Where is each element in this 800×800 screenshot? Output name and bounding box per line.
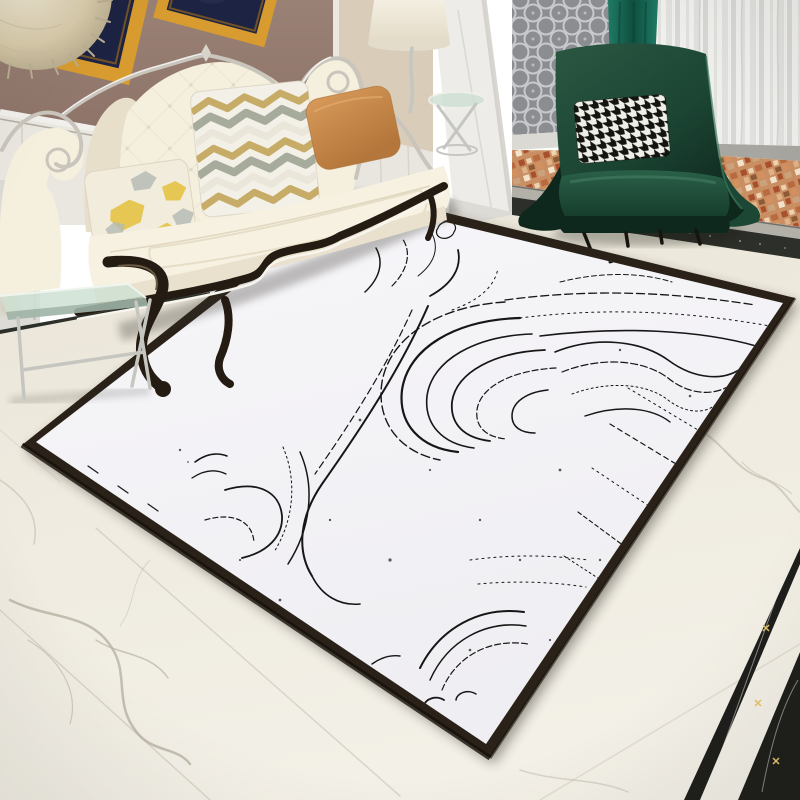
- chevron-pillow: [190, 79, 328, 217]
- chair-skirt: [558, 216, 729, 233]
- living-room-rug-scene: [0, 0, 800, 800]
- lamp-stem: [410, 48, 412, 112]
- houndstooth-pillow: [574, 94, 671, 164]
- scene-canvas: [0, 0, 800, 800]
- houndstooth-pillow-face: [574, 94, 671, 164]
- scroll-foot: [155, 381, 171, 397]
- lamp-shade-rim: [368, 37, 450, 51]
